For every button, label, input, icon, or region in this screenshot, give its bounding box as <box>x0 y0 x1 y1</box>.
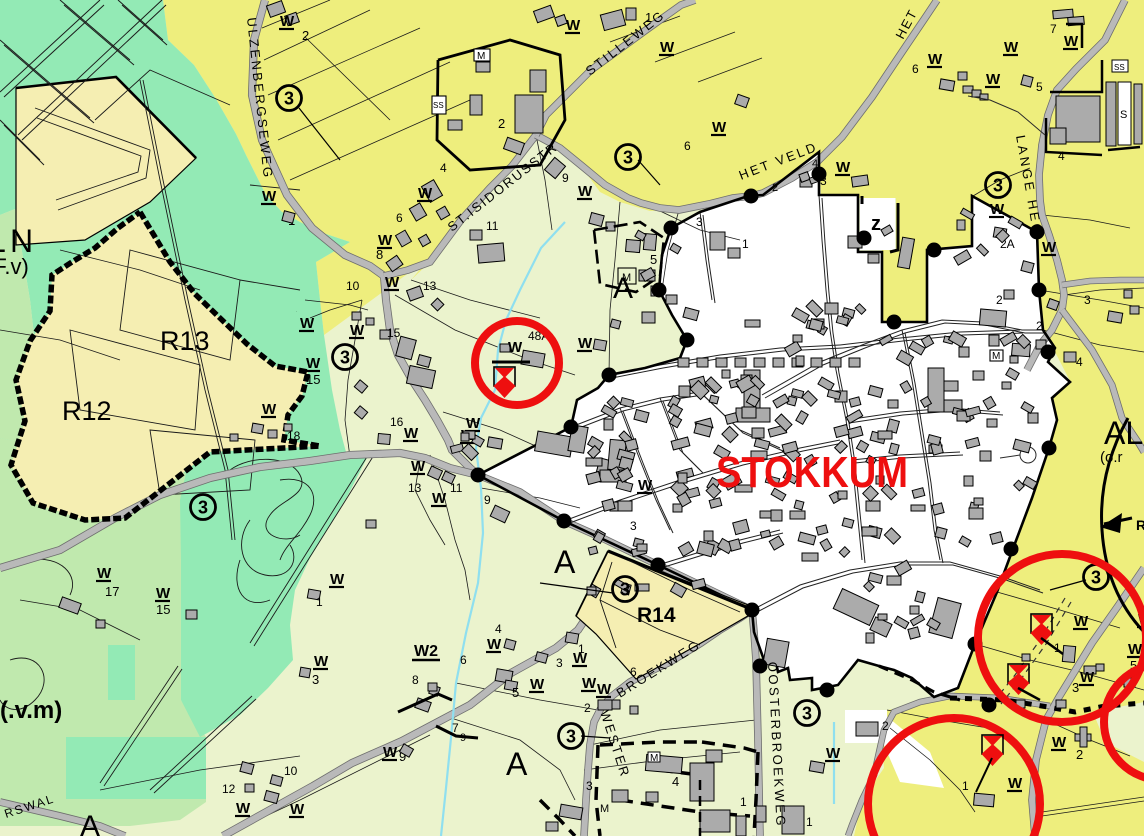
svg-text:M: M <box>992 351 1000 362</box>
svg-text:8: 8 <box>412 673 419 687</box>
svg-text:17: 17 <box>105 584 119 599</box>
svg-text:4: 4 <box>1076 355 1083 369</box>
svg-text:A: A <box>80 810 100 836</box>
svg-text:9: 9 <box>562 171 569 185</box>
svg-text:2: 2 <box>498 116 505 131</box>
svg-text:3: 3 <box>1072 680 1079 695</box>
svg-text:2: 2 <box>1076 747 1083 762</box>
svg-text:3: 3 <box>802 704 812 724</box>
svg-text:M: M <box>650 753 658 764</box>
svg-text:5: 5 <box>1036 80 1043 94</box>
svg-text:z: z <box>871 213 881 235</box>
svg-text:4: 4 <box>495 622 502 636</box>
svg-text:W: W <box>350 322 365 339</box>
svg-text:3: 3 <box>340 348 350 368</box>
svg-text:W: W <box>582 675 597 692</box>
svg-text:W: W <box>300 315 315 332</box>
svg-text:W: W <box>578 335 593 352</box>
svg-text:R: R <box>1136 517 1144 533</box>
svg-text:4: 4 <box>672 774 679 789</box>
svg-text:AL: AL <box>1104 415 1143 451</box>
svg-text:W: W <box>330 571 345 588</box>
svg-text:4: 4 <box>440 161 447 175</box>
svg-text:W: W <box>280 13 295 30</box>
svg-text:R14: R14 <box>637 604 676 627</box>
svg-text:4: 4 <box>1058 149 1065 163</box>
svg-text:10: 10 <box>346 279 360 293</box>
svg-text:STOKKUM: STOKKUM <box>716 448 908 497</box>
svg-text:1: 1 <box>742 237 749 251</box>
svg-text:W: W <box>986 71 1001 88</box>
svg-text:W: W <box>660 39 675 56</box>
svg-text:3: 3 <box>312 672 319 687</box>
svg-text:W: W <box>712 119 727 136</box>
svg-text:11: 11 <box>450 481 463 495</box>
svg-text:2: 2 <box>882 719 889 733</box>
svg-text:18: 18 <box>287 429 301 443</box>
svg-text:6: 6 <box>684 139 691 153</box>
svg-text:W: W <box>638 477 653 494</box>
svg-text:W: W <box>383 744 398 761</box>
svg-text:11: 11 <box>486 219 499 233</box>
svg-text:6: 6 <box>460 653 467 667</box>
svg-text:W: W <box>1074 613 1089 630</box>
svg-text:W: W <box>411 458 426 475</box>
svg-text:W: W <box>530 676 545 693</box>
svg-text:W: W <box>262 188 277 205</box>
svg-text:W: W <box>826 745 841 762</box>
svg-text:W2: W2 <box>414 643 438 660</box>
svg-text:W: W <box>432 490 447 507</box>
svg-text:W: W <box>314 653 329 670</box>
svg-text:W: W <box>1052 734 1067 751</box>
svg-text:W: W <box>156 585 171 602</box>
svg-text:8: 8 <box>376 247 383 262</box>
svg-text:M: M <box>600 803 609 815</box>
svg-text:3: 3 <box>566 727 576 747</box>
svg-text:W: W <box>97 565 112 582</box>
svg-text:W: W <box>290 801 305 818</box>
svg-text:(F.v): (F.v) <box>0 254 29 279</box>
svg-text:W: W <box>573 650 588 667</box>
svg-text:1: 1 <box>806 815 813 829</box>
svg-text:16: 16 <box>390 415 404 429</box>
svg-text:3: 3 <box>630 519 637 533</box>
svg-text:R12: R12 <box>62 396 112 426</box>
svg-text:SS: SS <box>1114 63 1125 72</box>
svg-text:W: W <box>1080 669 1095 686</box>
svg-text:W: W <box>385 274 400 291</box>
svg-text:15: 15 <box>156 602 170 617</box>
svg-text:W: W <box>404 425 419 442</box>
svg-text:6: 6 <box>912 62 919 76</box>
svg-text:15: 15 <box>306 372 320 387</box>
svg-text:W: W <box>418 185 433 202</box>
svg-text:R13: R13 <box>160 326 210 356</box>
svg-text:W: W <box>836 159 851 176</box>
svg-text:13: 13 <box>423 279 437 293</box>
svg-text:3: 3 <box>696 215 703 229</box>
svg-text:6: 6 <box>396 211 403 225</box>
svg-text:W: W <box>1042 239 1057 256</box>
svg-text:7: 7 <box>1050 22 1057 36</box>
svg-text:1: 1 <box>740 795 747 809</box>
svg-text:(.v.m): (.v.m) <box>0 697 62 724</box>
svg-text:S: S <box>1120 109 1127 121</box>
svg-text:12: 12 <box>222 782 236 796</box>
svg-text:3: 3 <box>198 498 208 518</box>
svg-text:1: 1 <box>962 779 969 793</box>
svg-text:3: 3 <box>1091 568 1101 588</box>
svg-text:10: 10 <box>284 764 298 778</box>
svg-text:W: W <box>306 355 321 372</box>
svg-text:M: M <box>477 51 485 62</box>
svg-text:2: 2 <box>772 182 778 194</box>
svg-text:W: W <box>578 183 593 200</box>
svg-text:W: W <box>296 311 297 313</box>
svg-text:A: A <box>613 272 633 305</box>
svg-text:3: 3 <box>586 779 593 793</box>
svg-text:5: 5 <box>512 685 519 700</box>
svg-text:13: 13 <box>408 481 422 495</box>
svg-text:W: W <box>1064 33 1079 50</box>
svg-text:3: 3 <box>1084 293 1091 307</box>
svg-text:W: W <box>236 800 251 817</box>
svg-text:3: 3 <box>556 656 563 670</box>
svg-text:5: 5 <box>650 252 657 267</box>
svg-text:W: W <box>262 401 277 418</box>
svg-text:W: W <box>566 17 581 34</box>
svg-text:3: 3 <box>620 580 630 600</box>
svg-text:W: W <box>508 339 523 356</box>
svg-text:W: W <box>990 201 1005 218</box>
svg-text:3: 3 <box>623 148 633 168</box>
svg-text:W: W <box>1004 39 1019 56</box>
svg-text:W: W <box>597 681 612 698</box>
svg-text:9: 9 <box>484 493 491 507</box>
svg-text:2: 2 <box>996 293 1003 307</box>
svg-text:15: 15 <box>387 326 401 340</box>
svg-text:A: A <box>506 746 528 782</box>
svg-text:2: 2 <box>1036 319 1043 333</box>
svg-text:A: A <box>554 544 576 580</box>
svg-text:W: W <box>928 51 943 68</box>
svg-text:SS: SS <box>433 101 444 110</box>
svg-text:3: 3 <box>284 89 294 109</box>
svg-text:2: 2 <box>584 701 591 715</box>
svg-text:W: W <box>1008 775 1023 792</box>
svg-text:2: 2 <box>302 28 309 43</box>
svg-text:3: 3 <box>993 176 1003 196</box>
svg-text:W: W <box>487 636 502 653</box>
svg-text:1: 1 <box>316 595 323 609</box>
